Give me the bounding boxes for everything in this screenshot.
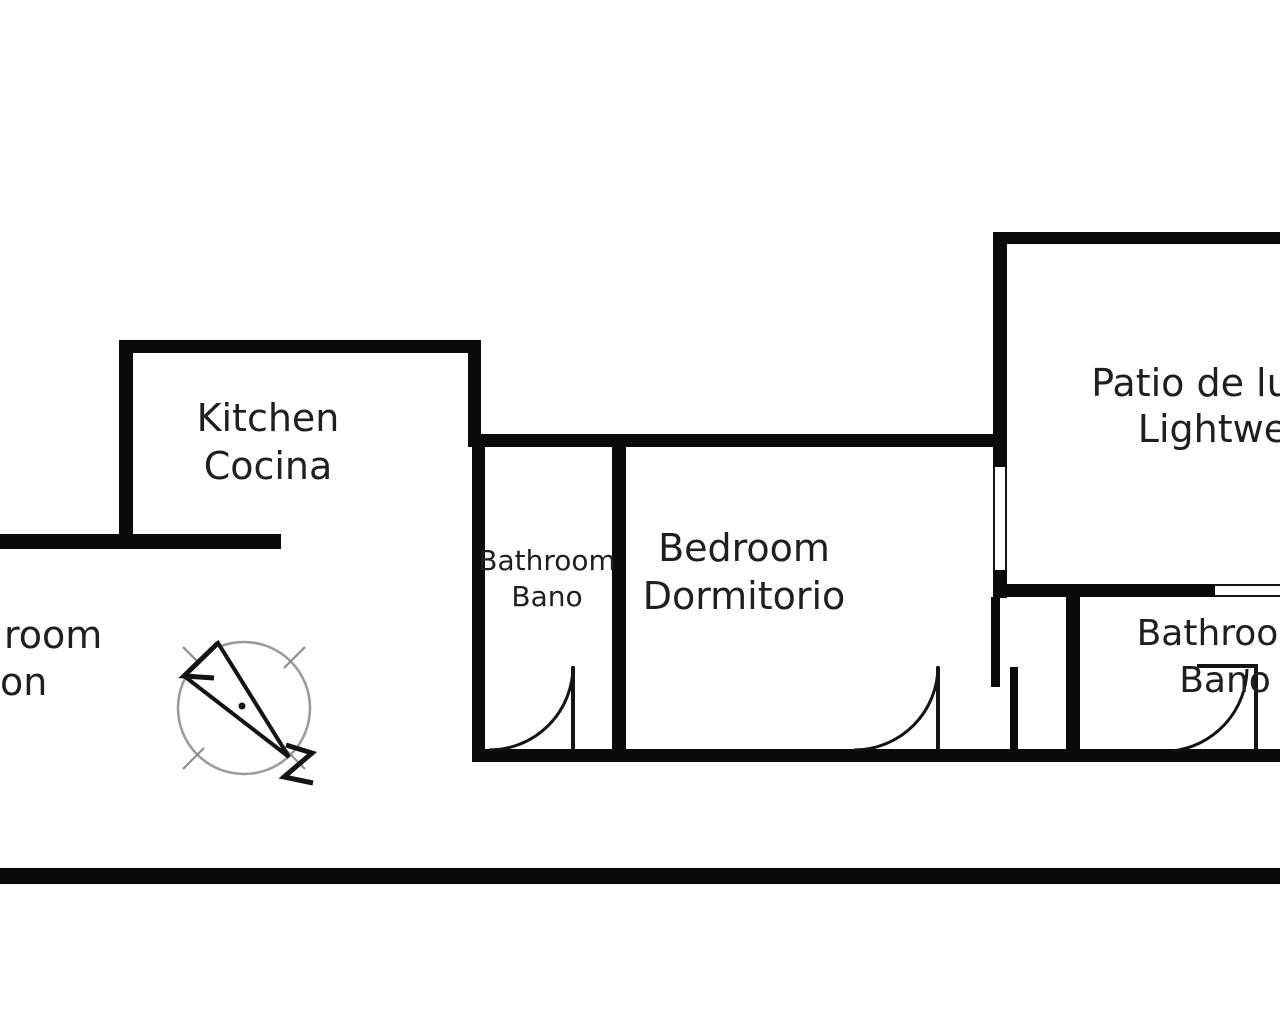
door-bathroom-left [489, 666, 573, 750]
compass-center-dot [239, 703, 246, 710]
door-bedroom [854, 666, 938, 750]
room-name-en: Kitchen [118, 394, 418, 442]
room-name-es: Bano [1075, 657, 1280, 704]
room-name-en: Bathroom [1075, 610, 1280, 657]
plan-graphics [0, 0, 1280, 1024]
label-bedroom: Bedroom Dormitorio [594, 524, 894, 620]
compass-north-arrow-icon [178, 642, 313, 783]
room-name-en: Bedroom [594, 524, 894, 572]
label-living-room-fragment: room [4, 611, 102, 659]
label-patio-lightwell: Patio de luces Lightwell [1073, 360, 1280, 452]
floor-plan-page: { "meta": { "type": "apartment-floor-pla… [0, 0, 1280, 1024]
label-kitchen: Kitchen Cocina [118, 394, 418, 490]
label-bathroom-right: Bathroom Bano [1075, 610, 1280, 704]
room-name-es: Cocina [118, 442, 418, 490]
compass-fletch [284, 745, 313, 783]
room-name-es: Dormitorio [594, 572, 894, 620]
room-name-es: Patio de luces [1073, 360, 1280, 406]
door-swing-arc [489, 666, 573, 750]
label-salon-fragment: on [0, 658, 47, 706]
door-swing-arc [854, 666, 938, 750]
room-name-en: Lightwell [1073, 406, 1280, 452]
